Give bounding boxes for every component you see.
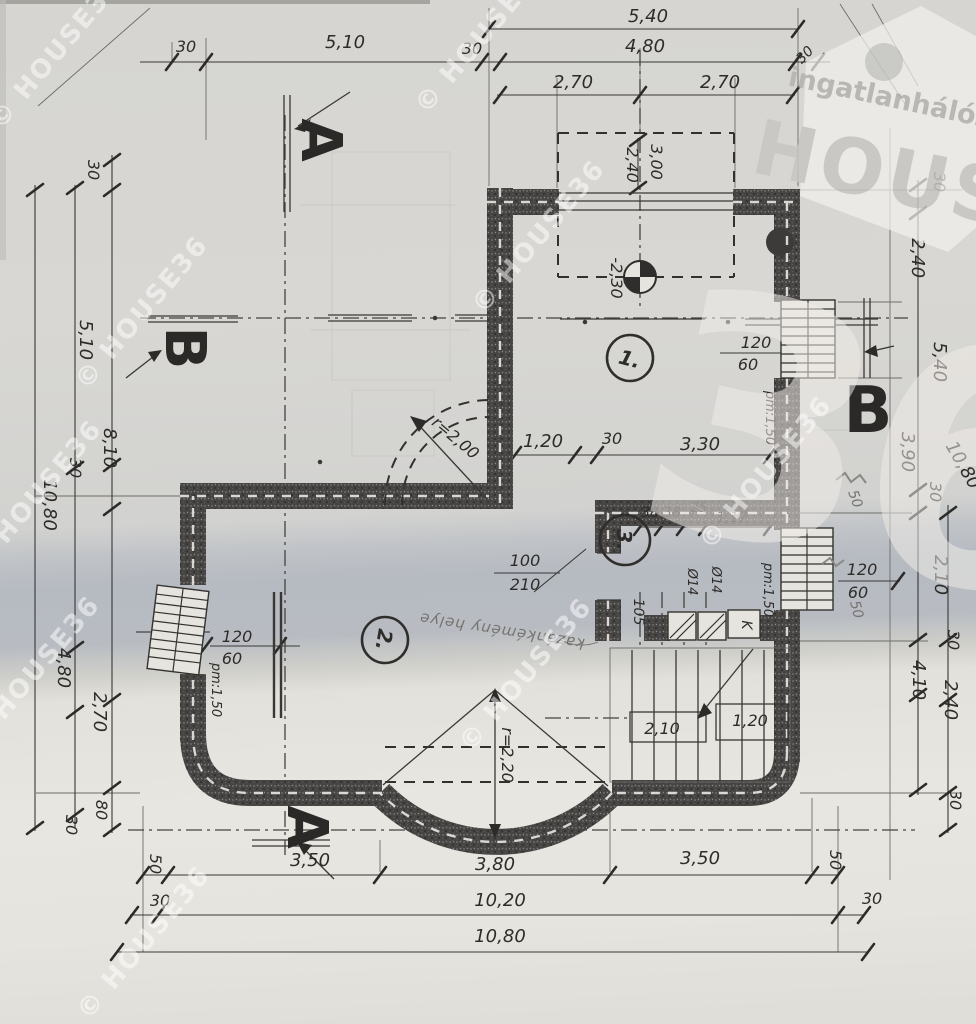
floor-plan-drawing: A A B B 1. 2. 3. 5,40 30 5,10 30 4,80 30… bbox=[0, 0, 976, 1024]
radius-bay-label: r=2,20 bbox=[498, 727, 517, 783]
dim-bottom-end-r: 50 bbox=[826, 850, 845, 870]
stair-dim-a: 2,10 bbox=[644, 719, 680, 738]
dim-door-h: 210 bbox=[510, 575, 541, 594]
dim-door-w: 100 bbox=[510, 551, 541, 570]
dim-bottom-span-total: 10,20 bbox=[474, 890, 526, 911]
dim-left-wall-top: 30 bbox=[84, 160, 103, 180]
dim-win-left-h: 60 bbox=[222, 649, 242, 668]
window-left bbox=[147, 585, 209, 675]
dim-bottom-overall: 10,80 bbox=[474, 926, 526, 947]
dim-top-half-l: 2,70 bbox=[553, 72, 593, 93]
dim-room3-e: 105 bbox=[630, 599, 646, 626]
dim-left-seg: 80 bbox=[92, 800, 111, 820]
dim-bottom-span-l: 3,50 bbox=[290, 850, 330, 871]
dim-terrace-d: 2,40 bbox=[623, 147, 642, 183]
dim-room1-a: 1,20 bbox=[523, 431, 563, 452]
dim-win-left-w: 120 bbox=[222, 627, 253, 646]
dim-top-span-l: 5,10 bbox=[325, 32, 365, 53]
dim-terrace-w: 3,00 bbox=[647, 144, 666, 180]
stair-dim-b: 1,20 bbox=[732, 711, 768, 730]
section-label-b-left: B bbox=[152, 327, 217, 370]
dim-left-span-low2: 2,70 bbox=[89, 692, 110, 732]
dim-bottom-end-l: 50 bbox=[146, 854, 165, 874]
logo-tag-hole bbox=[865, 43, 903, 81]
dim-bottom-span-m: 3,80 bbox=[475, 854, 515, 875]
room2-number: 2. bbox=[370, 627, 397, 652]
dim-bottom-span-r: 3,50 bbox=[680, 848, 720, 869]
dim-top-span-r: 4,80 bbox=[625, 36, 665, 57]
dim-right-wall-c: 30 bbox=[946, 790, 965, 810]
dim-top-overall: 5,40 bbox=[628, 6, 668, 27]
level-value: -2,30 bbox=[607, 257, 626, 298]
dim-top-half-r: 2,70 bbox=[700, 72, 740, 93]
section-label-a-bottom: A bbox=[274, 805, 339, 849]
dim-room1-b: 30 bbox=[602, 429, 622, 448]
dim-top-wall-l: 30 bbox=[176, 37, 196, 56]
level-marker bbox=[624, 261, 656, 293]
dim-right-span-f: 4,10 bbox=[908, 660, 929, 700]
dim-left-wall-bot: 30 bbox=[62, 815, 81, 835]
floor-plan-sheet: A A B B 1. 2. 3. 5,40 30 5,10 30 4,80 30… bbox=[0, 0, 976, 1024]
dim-right-span-e: 2,40 bbox=[940, 680, 961, 720]
section-label-a-top: A bbox=[288, 118, 353, 162]
dim-win-left-pm: pm:1,50 bbox=[208, 662, 223, 717]
dim-bottom-wall-r: 30 bbox=[862, 889, 882, 908]
